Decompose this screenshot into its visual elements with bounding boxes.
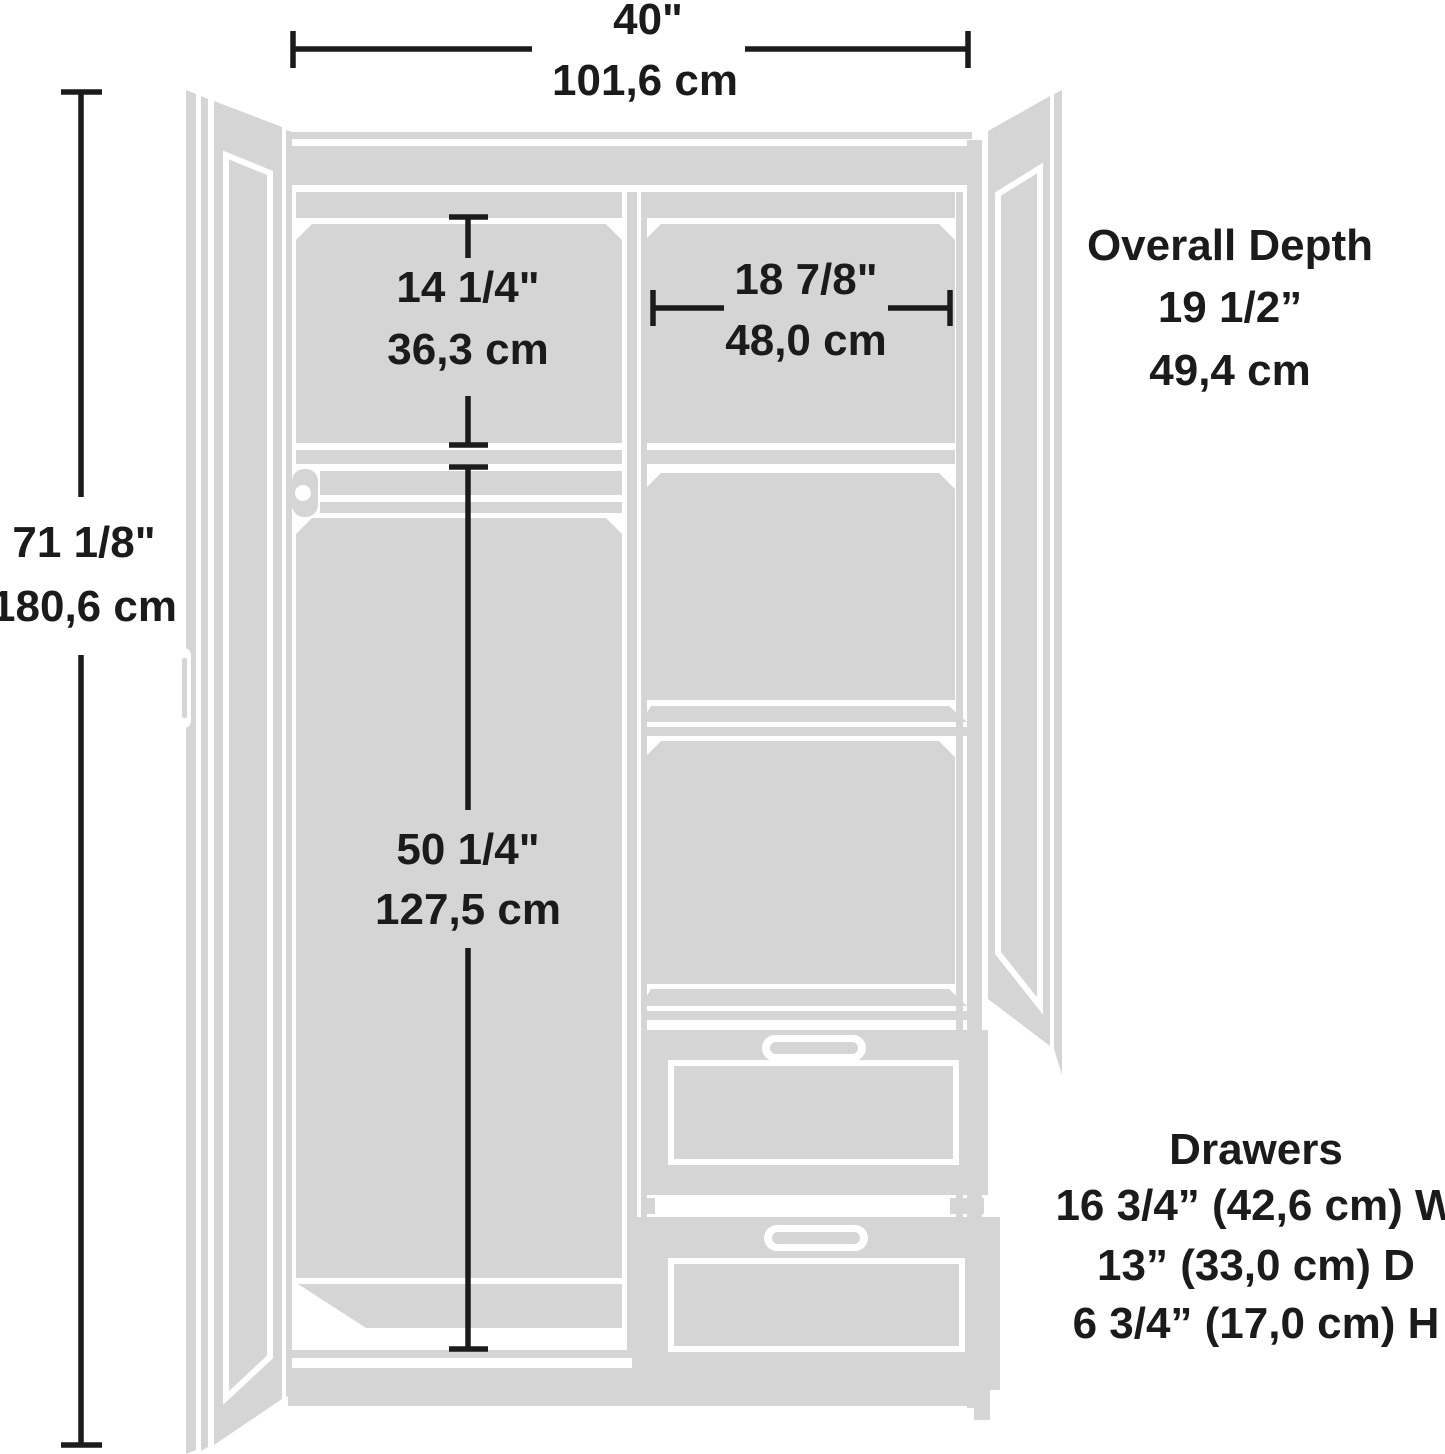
right-shelf-1 bbox=[641, 706, 967, 722]
drawers-height-label: 6 3/4” (17,0 cm) H bbox=[1073, 1302, 1440, 1346]
drawer-1 bbox=[643, 1030, 988, 1195]
overall-depth-cm-label: 49,4 cm bbox=[1149, 349, 1310, 393]
clothes-rod bbox=[320, 502, 622, 513]
right-door bbox=[988, 90, 1062, 1075]
right-shelf-2 bbox=[641, 989, 967, 1006]
upper-right-cm-label: 48,0 cm bbox=[725, 319, 886, 363]
drawers-title: Drawers bbox=[1169, 1128, 1343, 1172]
left-door bbox=[177, 90, 292, 1454]
cabinet-foot bbox=[974, 1390, 990, 1420]
overall-depth-title: Overall Depth bbox=[1087, 224, 1373, 268]
overall-width-inches-label: 40" bbox=[613, 0, 683, 42]
left-shelf bbox=[296, 450, 622, 464]
hanging-cm-label: 127,5 cm bbox=[375, 888, 561, 932]
drawer-2 bbox=[632, 1217, 1000, 1390]
overall-width-cm-label: 101,6 cm bbox=[552, 59, 738, 103]
hanging-inches-label: 50 1/4" bbox=[396, 828, 539, 872]
cabinet-line-art bbox=[0, 0, 1445, 1454]
overall-height-inches-label: 71 1/8" bbox=[12, 521, 155, 565]
drawers-depth-label: 13” (33,0 cm) D bbox=[1097, 1244, 1415, 1288]
cabinet-floor bbox=[298, 1284, 622, 1328]
wardrobe-dimension-diagram: 40" 101,6 cm 71 1/8" 180,6 cm 14 1/4" 36… bbox=[0, 0, 1445, 1454]
drawers-width-label: 16 3/4” (42,6 cm) W bbox=[1055, 1184, 1445, 1228]
overall-height-cm-label: 180,6 cm bbox=[0, 585, 177, 629]
overall-depth-inches-label: 19 1/2” bbox=[1158, 286, 1302, 330]
upper-left-inches-label: 14 1/4" bbox=[396, 266, 539, 310]
upper-left-cm-label: 36,3 cm bbox=[387, 328, 548, 372]
upper-right-inches-label: 18 7/8" bbox=[734, 258, 877, 302]
